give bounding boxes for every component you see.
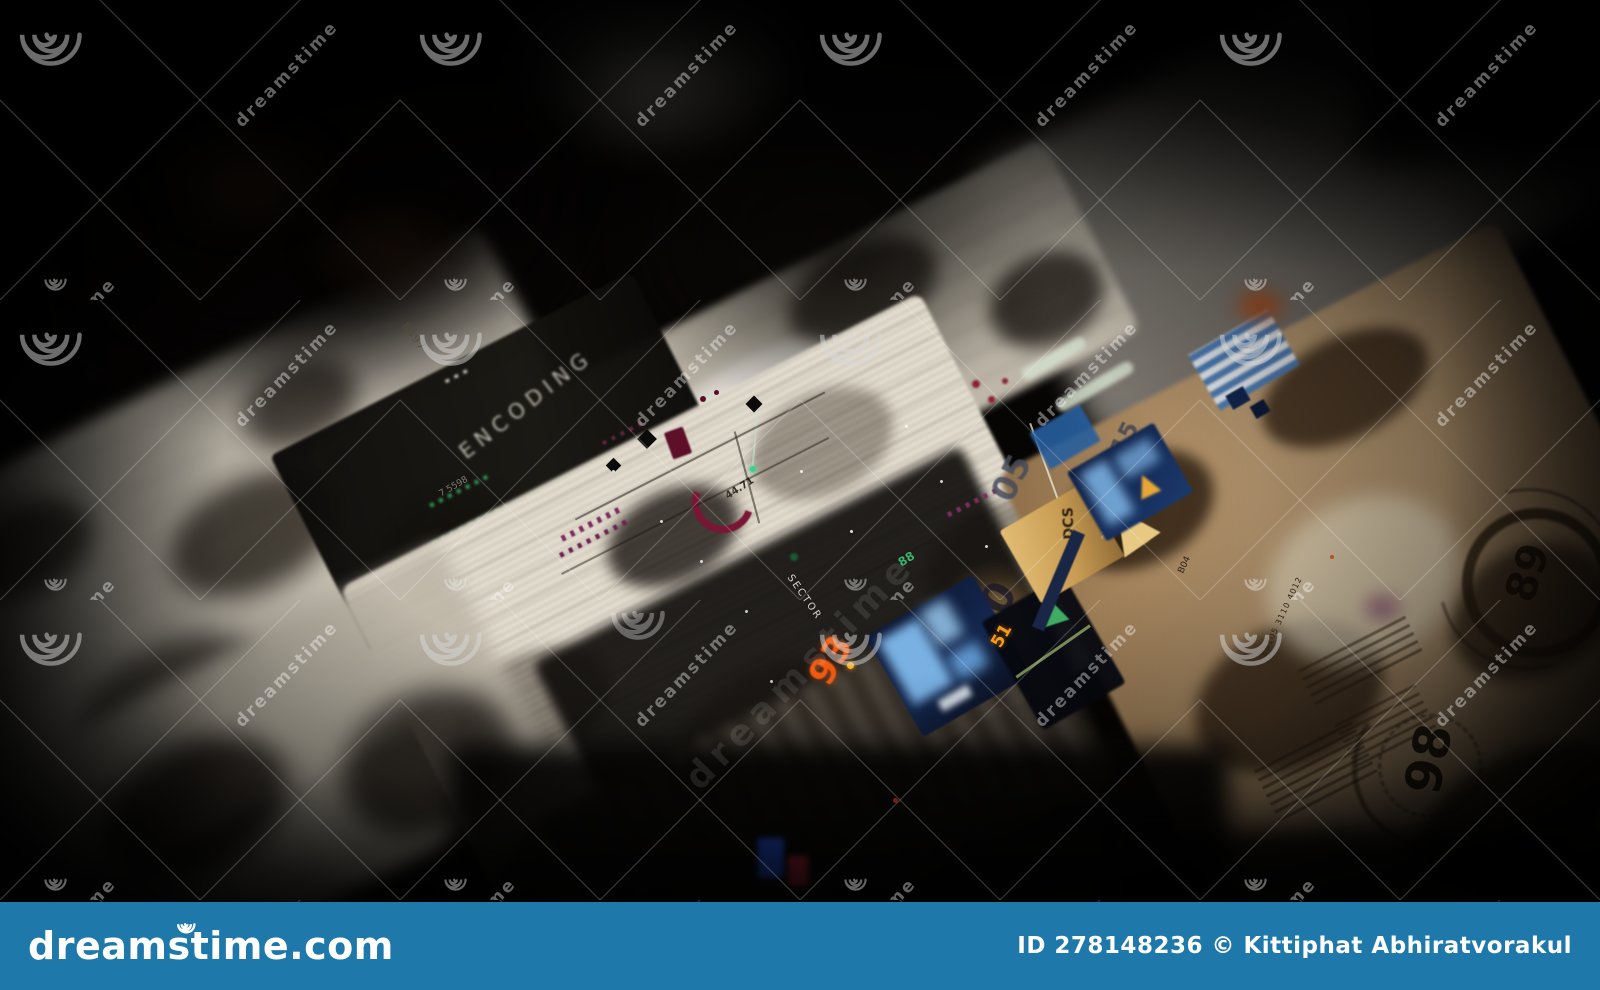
dreamstime-spiral-icon	[177, 915, 197, 935]
dark-red-dot	[714, 390, 719, 395]
dreamstime-logo-text: dreamstime.com	[28, 924, 394, 968]
photo-canvas: ENCODING	[0, 0, 1600, 902]
encoding-label: ENCODING	[454, 345, 597, 464]
sparkle-dot	[745, 610, 748, 613]
sparkle-dot	[612, 470, 615, 473]
dark-mass-top-right-corner	[1360, 0, 1600, 160]
faint-brown-blob	[140, 110, 340, 240]
gold-triangle-small	[1132, 470, 1161, 499]
sparkle-dot	[985, 545, 988, 548]
dark-mass-right-low	[1130, 830, 1600, 902]
sparkle-dot	[700, 560, 703, 563]
sparkle-dot	[940, 480, 943, 483]
orange-dot	[1330, 555, 1334, 559]
neon-green-dot	[750, 466, 756, 472]
image-credit: ID 278148236 © Kittiphat Abhiratvorakul	[1017, 933, 1572, 959]
dark-blotch	[75, 706, 312, 902]
stock-photo-page: ENCODING	[0, 0, 1600, 990]
red-dot	[988, 396, 995, 403]
glitch-red	[788, 856, 808, 886]
dark-blotch	[0, 477, 109, 621]
amber-dot	[847, 662, 854, 669]
red-dot	[1002, 378, 1008, 384]
dreamstime-logo: dreamstime.com	[28, 924, 394, 968]
red-dot	[972, 380, 980, 388]
spiral-glyph	[178, 924, 194, 932]
dark-mass-bottom-center	[450, 745, 1230, 902]
screen-glyph-glow	[946, 640, 989, 681]
orange-blob	[1228, 282, 1292, 330]
sparkle-dot	[850, 530, 853, 533]
sparkle-dot	[800, 470, 803, 473]
footer-bar: dreamstime.com ID 278148236 © Kittiphat …	[0, 902, 1600, 990]
dark-blotch	[0, 895, 153, 902]
green-dot	[790, 553, 798, 561]
sparkle-dot	[905, 425, 908, 428]
dark-red-dot	[700, 396, 706, 402]
sparkle-dot	[660, 520, 663, 523]
sparkle-dot	[770, 680, 773, 683]
red-dot	[893, 798, 898, 803]
glitch-blue	[758, 838, 784, 878]
white-dash-row	[445, 367, 473, 383]
faint-brown-blob	[300, 195, 480, 305]
